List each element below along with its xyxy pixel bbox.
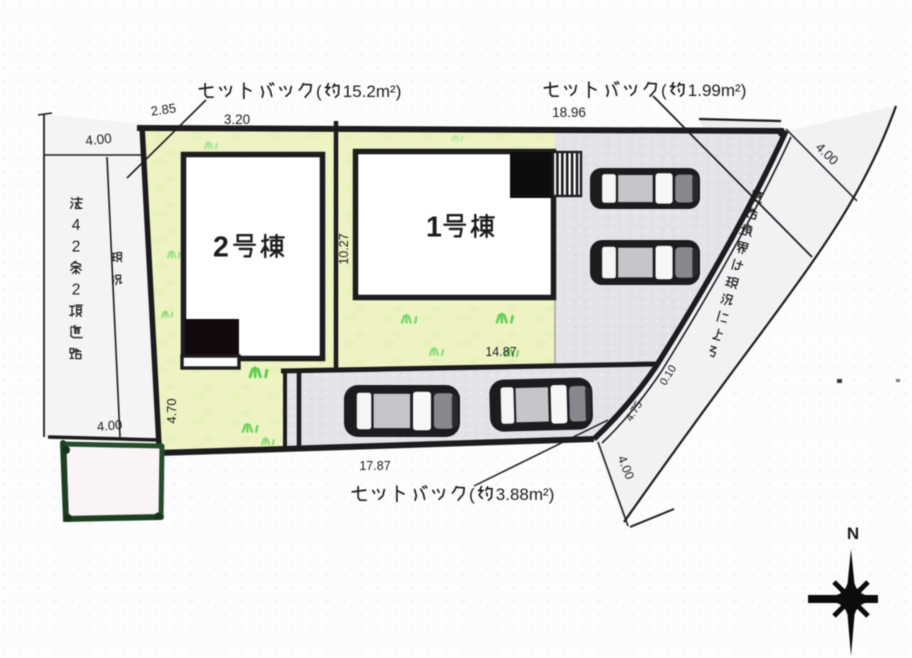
svg-text:4: 4 [72, 217, 81, 234]
svg-text:4.00: 4.00 [96, 417, 123, 434]
svg-text:(: ( [661, 81, 667, 100]
svg-text:2: 2 [213, 231, 229, 263]
svg-text:18.96: 18.96 [552, 105, 586, 120]
svg-text:3.20: 3.20 [224, 112, 250, 127]
svg-text:(: ( [316, 82, 322, 101]
svg-text:10.27: 10.27 [337, 233, 351, 264]
svg-text:17.87: 17.87 [359, 459, 390, 473]
svg-text:15.2m²): 15.2m²) [343, 82, 402, 101]
svg-text:14.87: 14.87 [485, 345, 516, 359]
svg-text:2: 2 [72, 239, 81, 256]
svg-text:3.88m²): 3.88m²) [496, 485, 555, 504]
svg-text:2: 2 [72, 282, 81, 299]
svg-text:4.70: 4.70 [164, 398, 179, 423]
svg-text:(: ( [469, 485, 475, 504]
svg-text:4.00: 4.00 [85, 131, 113, 149]
svg-text:N: N [847, 524, 859, 543]
svg-text:1: 1 [426, 211, 442, 243]
svg-text:1.99m²): 1.99m²) [688, 81, 747, 100]
